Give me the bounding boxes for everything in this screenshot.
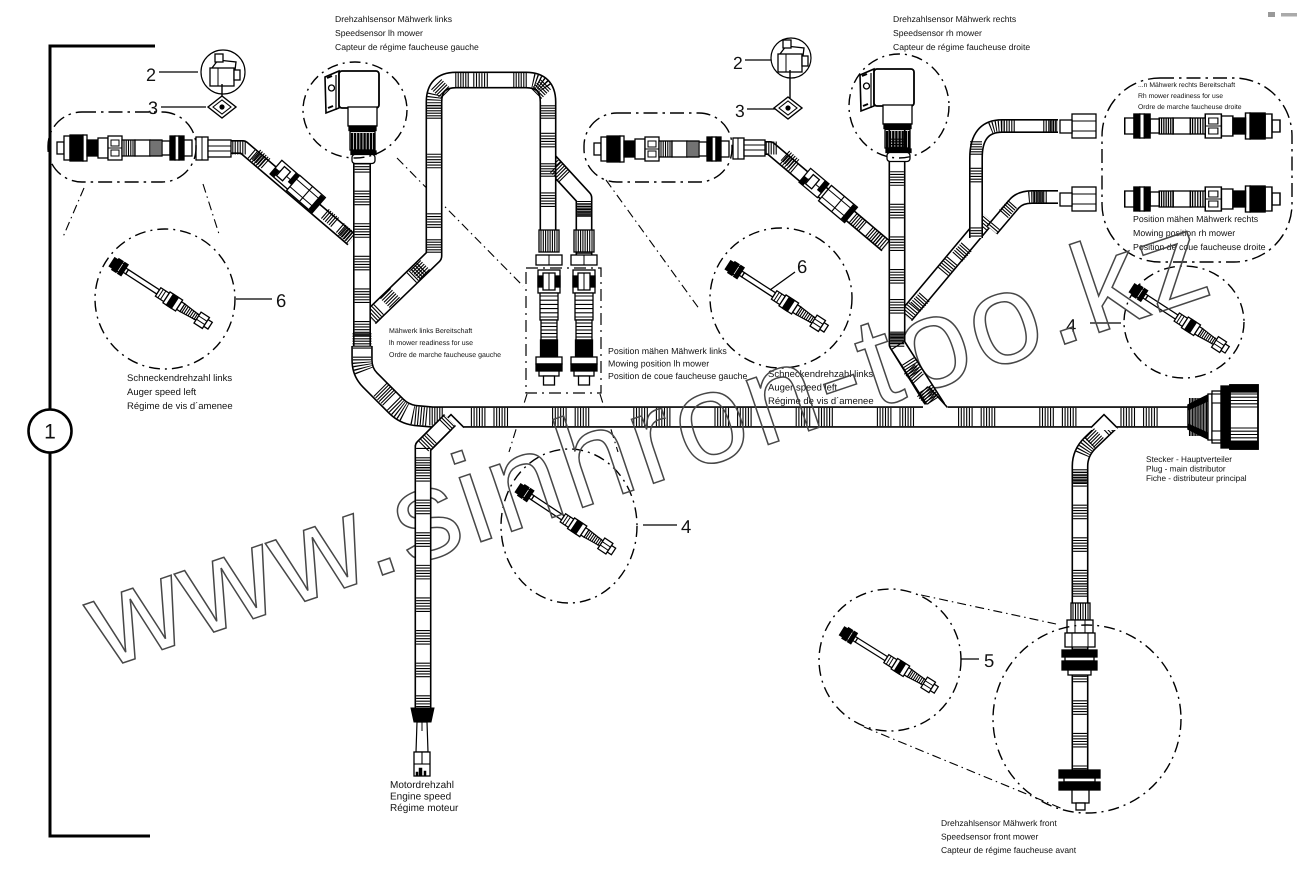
svg-text:Plug - main distributor: Plug - main distributor [1146,465,1226,474]
svg-text:lh mower readiness for use: lh mower readiness for use [389,339,473,347]
svg-text:2: 2 [733,53,743,73]
svg-text:Ordre de marche faucheuse droi: Ordre de marche faucheuse droite [1138,104,1242,111]
svg-text:Drehzahlsensor Mähwerk links: Drehzahlsensor Mähwerk links [335,14,452,24]
svg-text:2: 2 [146,65,156,85]
svg-text:6: 6 [276,290,286,311]
svg-text:Motordrehzahl: Motordrehzahl [390,780,454,791]
svg-text:Speedsensor front mower: Speedsensor front mower [941,832,1038,842]
svg-text:Engine speed: Engine speed [390,792,451,803]
svg-text:Drehzahlsensor Mähwerk front: Drehzahlsensor Mähwerk front [941,818,1057,828]
svg-text:5: 5 [984,650,994,671]
svg-text:Régime de vis d´amenee: Régime de vis d´amenee [127,401,233,412]
svg-text:Auger speed left: Auger speed left [127,387,197,398]
svg-text:Régime moteur: Régime moteur [390,803,459,814]
svg-text:Rh mower readiness for use: Rh mower readiness for use [1138,93,1223,100]
svg-text:Fiche - distributeur principal: Fiche - distributeur principal [1146,474,1247,483]
svg-text:Speedsensor lh mower: Speedsensor lh mower [335,28,423,38]
svg-text:1: 1 [44,421,56,444]
svg-text:Mähwerk links Bereitschaft: Mähwerk links Bereitschaft [389,327,472,335]
svg-text:...n Mähwerk rechts Bereitscha: ...n Mähwerk rechts Bereitschaft [1138,82,1235,89]
svg-text:Speedsensor rh mower: Speedsensor rh mower [893,28,982,38]
svg-text:Capteur de régime faucheuse ga: Capteur de régime faucheuse gauche [335,42,479,52]
svg-text:Stecker - Hauptverteiler: Stecker - Hauptverteiler [1146,455,1232,464]
svg-text:3: 3 [735,101,745,121]
svg-text:Capteur de régime faucheuse dr: Capteur de régime faucheuse droite [893,42,1030,52]
svg-text:Capteur de régime faucheuse av: Capteur de régime faucheuse avant [941,845,1077,855]
svg-text:Schneckendrehzahl links: Schneckendrehzahl links [127,373,232,384]
svg-text:Drehzahlsensor Mähwerk rechts: Drehzahlsensor Mähwerk rechts [893,14,1016,24]
svg-text:Ordre de marche faucheuse gauc: Ordre de marche faucheuse gauche [389,351,501,359]
svg-text:6: 6 [797,256,807,277]
svg-text:3: 3 [148,98,158,118]
svg-text:4: 4 [681,516,691,537]
